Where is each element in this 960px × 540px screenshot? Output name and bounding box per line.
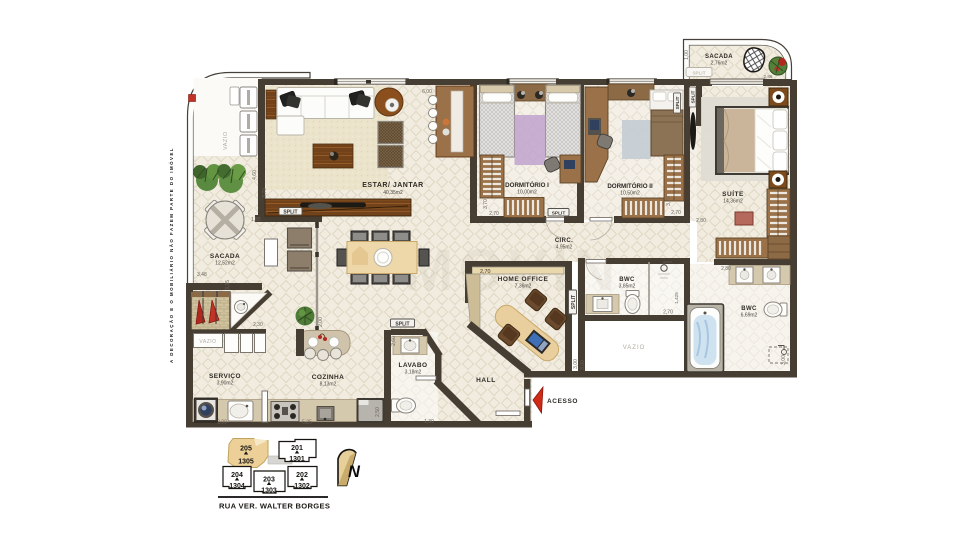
svg-text:VAZIO: VAZIO — [199, 339, 216, 345]
svg-text:1303: 1303 — [261, 488, 277, 495]
svg-text:2,86: 2,86 — [764, 74, 773, 79]
svg-text:SPLIT: SPLIT — [675, 96, 680, 109]
svg-text:VAZIO: VAZIO — [623, 345, 646, 351]
svg-text:4,95m2: 4,95m2 — [556, 245, 573, 251]
svg-text:1,85: 1,85 — [251, 217, 261, 223]
svg-text:14,36m2: 14,36m2 — [723, 199, 743, 205]
svg-text:6,00: 6,00 — [422, 89, 432, 95]
svg-text:VAZIO: VAZIO — [223, 131, 229, 150]
svg-text:BWC: BWC — [741, 306, 757, 312]
svg-text:8,13m2: 8,13m2 — [320, 382, 337, 388]
svg-text:BWC: BWC — [619, 277, 635, 283]
svg-text:7,36m2: 7,36m2 — [515, 284, 532, 290]
svg-text:2,70: 2,70 — [489, 211, 499, 217]
svg-text:2,00: 2,00 — [217, 420, 227, 426]
svg-text:RUA VER. WALTER BORGES: RUA VER. WALTER BORGES — [219, 502, 330, 511]
svg-text:2,70: 2,70 — [671, 210, 681, 216]
svg-text:1305: 1305 — [238, 459, 254, 466]
svg-text:SACADA: SACADA — [705, 54, 733, 60]
svg-text:ESTAR/ JANTAR: ESTAR/ JANTAR — [362, 182, 423, 189]
svg-text:12,52m2: 12,52m2 — [215, 261, 235, 267]
svg-text:5,25: 5,25 — [302, 420, 312, 426]
svg-text:3,70: 3,70 — [666, 196, 672, 206]
svg-text:1302: 1302 — [294, 483, 310, 490]
svg-text:3,00: 3,00 — [573, 359, 579, 369]
svg-text:SERVIÇO: SERVIÇO — [209, 373, 241, 380]
svg-text:COZINHA: COZINHA — [312, 374, 344, 381]
svg-text:SACADA: SACADA — [210, 253, 240, 260]
svg-text:1301: 1301 — [289, 456, 305, 463]
svg-text:2,60: 2,60 — [391, 336, 397, 346]
svg-text:2,80: 2,80 — [696, 218, 706, 224]
svg-text:SPLIT: SPLIT — [283, 209, 297, 215]
svg-text:LAVABO: LAVABO — [399, 362, 428, 369]
svg-text:3,00: 3,00 — [580, 360, 586, 370]
svg-text:1,30: 1,30 — [424, 419, 434, 425]
svg-text:4,60: 4,60 — [252, 170, 258, 180]
svg-text:3,70: 3,70 — [483, 199, 489, 209]
svg-text:3,85m2: 3,85m2 — [619, 284, 636, 290]
svg-text:10,00m2: 10,00m2 — [517, 190, 537, 196]
svg-text:HALL: HALL — [476, 377, 496, 384]
svg-text:2,70: 2,70 — [480, 269, 491, 275]
svg-text:SUÍTE: SUÍTE — [722, 189, 744, 198]
svg-text:ACESSO: ACESSO — [547, 398, 578, 405]
svg-text:2,70: 2,70 — [663, 310, 673, 316]
svg-text:1,425: 1,425 — [674, 292, 679, 304]
svg-text:DORMITÓRIO I: DORMITÓRIO I — [505, 181, 549, 189]
svg-text:3,90m2: 3,90m2 — [217, 381, 234, 387]
svg-text:CIRC.: CIRC. — [555, 238, 573, 244]
svg-text:SPLIT: SPLIT — [571, 295, 577, 309]
svg-text:N: N — [348, 463, 361, 481]
svg-text:HOME OFFICE: HOME OFFICE — [498, 276, 549, 283]
svg-text:3,35: 3,35 — [225, 280, 231, 290]
svg-text:3,48: 3,48 — [197, 272, 207, 278]
svg-text:SPLIT: SPLIT — [395, 321, 409, 327]
svg-text:1,00: 1,00 — [684, 50, 690, 60]
svg-text:2,76m2: 2,76m2 — [711, 61, 728, 67]
svg-text:DORMITÓRIO II: DORMITÓRIO II — [607, 182, 653, 190]
svg-text:3,00: 3,00 — [781, 355, 787, 365]
svg-text:6,69m2: 6,69m2 — [741, 313, 758, 319]
svg-text:SPLIT: SPLIT — [692, 70, 705, 75]
svg-text:SPLIT: SPLIT — [552, 210, 566, 216]
svg-text:2,30: 2,30 — [253, 322, 263, 328]
svg-text:2,00: 2,00 — [318, 317, 324, 327]
svg-text:10,50m2: 10,50m2 — [620, 191, 640, 197]
svg-text:SPLIT: SPLIT — [691, 90, 696, 103]
svg-text:3,18m2: 3,18m2 — [405, 370, 422, 376]
svg-text:40,35m2: 40,35m2 — [383, 190, 403, 196]
svg-text:3,70: 3,70 — [262, 188, 268, 198]
svg-text:1304: 1304 — [229, 483, 245, 490]
svg-text:A DECORAÇÃO E O MOBILIÁRIO NÃO: A DECORAÇÃO E O MOBILIÁRIO NÃO FAZEM PAR… — [169, 147, 174, 363]
svg-text:2,80: 2,80 — [721, 266, 731, 272]
svg-text:2,50: 2,50 — [375, 407, 381, 417]
